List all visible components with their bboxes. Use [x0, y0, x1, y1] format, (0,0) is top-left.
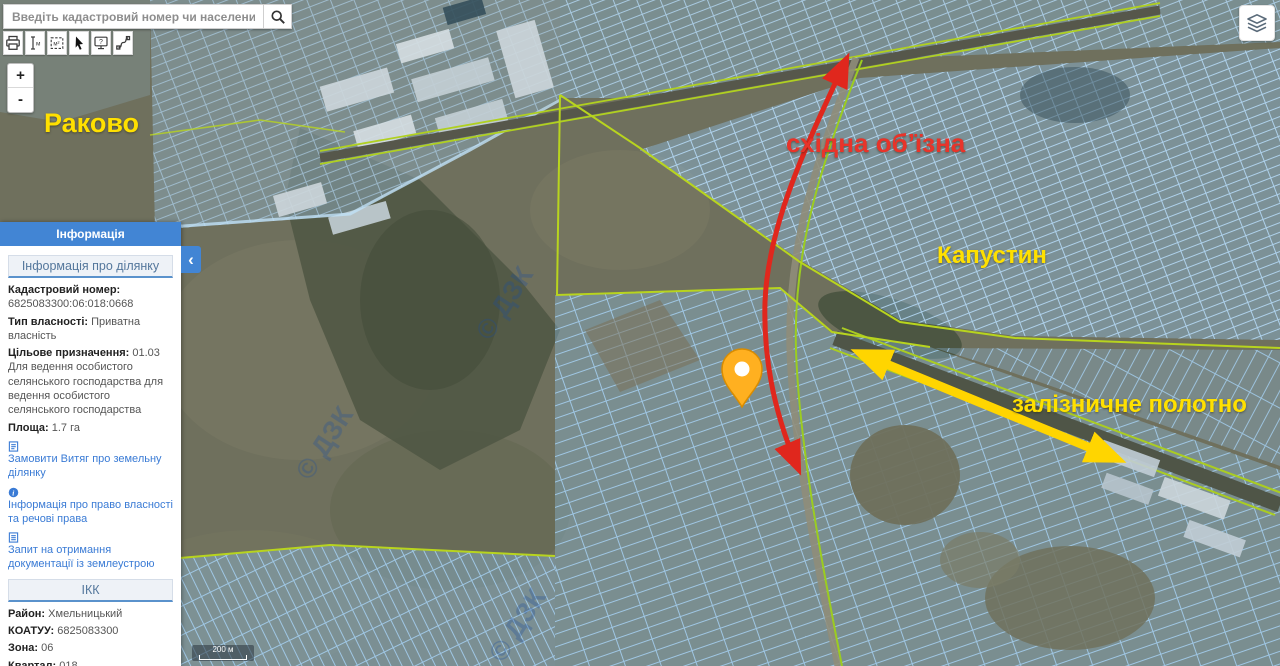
- route-icon: [115, 35, 131, 51]
- field-value: 1.7 га: [52, 422, 80, 434]
- search-input[interactable]: [3, 4, 263, 29]
- field-purpose: Цільове призначення: 01.03 Для ведення о…: [8, 346, 173, 417]
- zoom-in-button[interactable]: +: [8, 64, 33, 88]
- section-header-ikk[interactable]: ІКК: [8, 579, 173, 602]
- search-button[interactable]: [263, 4, 292, 29]
- map-toolbar: м м² ?: [3, 31, 133, 55]
- field-label: Квартал:: [8, 660, 56, 666]
- order-extract-link[interactable]: Замовити Витяг про земельну ділянку: [8, 441, 173, 481]
- link-label: Запит на отримання документації із земле…: [8, 544, 154, 570]
- info-sidebar: Інформація Інформація про ділянку Кадаст…: [0, 222, 181, 666]
- sidebar-collapse-button[interactable]: ‹: [181, 246, 201, 273]
- field-label: Район:: [8, 608, 45, 620]
- cursor-icon: [71, 35, 87, 51]
- field-label: Зона:: [8, 642, 38, 654]
- measure-area-button[interactable]: м²: [47, 31, 67, 55]
- field-label: Тип власності:: [8, 316, 88, 328]
- field-ikk-koatuu: КОАТУУ: 6825083300: [8, 624, 173, 638]
- chevron-left-icon: ‹: [188, 251, 194, 268]
- land-docs-request-link[interactable]: Запит на отримання документації із земле…: [8, 532, 173, 572]
- satellite-map[interactable]: © ДЗК © ДЗК © ДЗК: [0, 0, 1280, 666]
- scale-bar-label: 200 м: [212, 646, 233, 654]
- field-ikk-kvartal: Квартал: 018: [8, 659, 173, 666]
- svg-text:м: м: [36, 41, 41, 48]
- request-document-icon: [8, 532, 19, 543]
- field-ownership-type: Тип власності: Приватна власність: [8, 315, 173, 344]
- route-button[interactable]: [113, 31, 133, 55]
- link-label: Замовити Витяг про земельну ділянку: [8, 453, 162, 479]
- field-label: Площа:: [8, 422, 49, 434]
- svg-text:?: ?: [99, 39, 103, 46]
- scale-bar: 200 м: [192, 645, 254, 661]
- select-cursor-button[interactable]: [69, 31, 89, 55]
- document-icon: [8, 441, 19, 452]
- scale-bar-bracket: [199, 655, 247, 660]
- svg-text:м²: м²: [53, 42, 59, 48]
- field-value: 6825083300:06:018:0668: [8, 298, 133, 310]
- field-area: Площа: 1.7 га: [8, 421, 173, 435]
- layers-icon: [1245, 11, 1269, 35]
- measure-distance-button[interactable]: м: [25, 31, 45, 55]
- layers-button[interactable]: [1239, 5, 1275, 41]
- field-label: Кадастровий номер:: [8, 284, 120, 296]
- zoom-control: + -: [7, 63, 34, 113]
- link-label: Інформація про право власності та речові…: [8, 499, 173, 525]
- field-cadastral-number: Кадастровий номер: 6825083300:06:018:066…: [8, 283, 173, 312]
- print-button[interactable]: [3, 31, 23, 55]
- info-icon: i: [8, 487, 19, 498]
- measure-area-icon: м²: [49, 35, 65, 51]
- measure-distance-icon: м: [27, 35, 43, 51]
- cadastral-map-app: © ДЗК © ДЗК © ДЗК Раково східна об’їзна …: [0, 0, 1280, 666]
- field-value: 6825083300: [57, 625, 118, 637]
- sidebar-body: Інформація про ділянку Кадастровий номер…: [0, 246, 181, 666]
- field-value: 06: [41, 642, 53, 654]
- zoom-out-button[interactable]: -: [8, 88, 33, 112]
- field-label: Цільове призначення:: [8, 347, 129, 359]
- identify-button[interactable]: ?: [91, 31, 111, 55]
- identify-screen-icon: ?: [93, 35, 109, 51]
- field-ikk-zone: Зона: 06: [8, 641, 173, 655]
- search-bar: [3, 4, 292, 29]
- search-icon: [270, 9, 286, 25]
- section-header-parcel[interactable]: Інформація про ділянку: [8, 255, 173, 278]
- field-value: Хмельницький: [48, 608, 122, 620]
- field-label: КОАТУУ:: [8, 625, 54, 637]
- svg-text:i: i: [12, 488, 14, 497]
- field-value: 018: [59, 660, 77, 666]
- field-ikk-raion: Район: Хмельницький: [8, 607, 173, 621]
- ownership-rights-link[interactable]: i Інформація про право власності та речо…: [8, 487, 173, 527]
- sidebar-title: Інформація: [0, 222, 181, 246]
- print-icon: [5, 35, 21, 51]
